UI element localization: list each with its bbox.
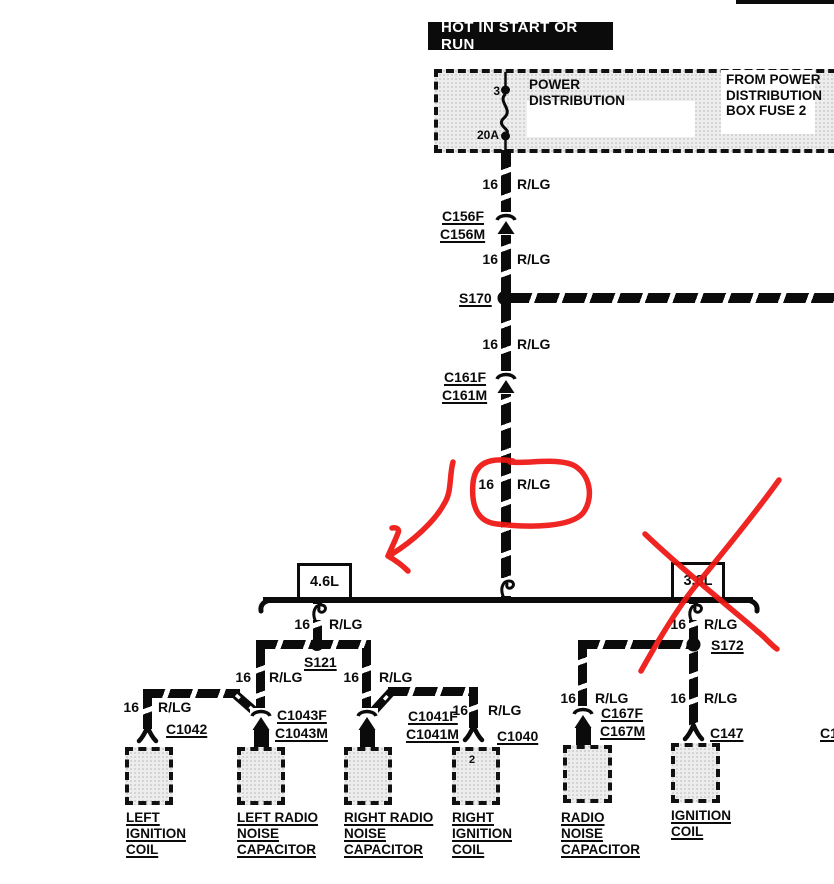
connector-c1042-label: C1042 — [166, 722, 207, 736]
splice-s121-label: S121 — [304, 655, 337, 669]
connector-c161f-label: C161F — [444, 370, 486, 384]
engine-tag-46l: 4.6L — [297, 563, 352, 600]
connector-c161m-label: C161M — [442, 388, 487, 402]
red-circle-annotation — [473, 460, 590, 526]
connector-c1040-label: C1040 — [497, 729, 538, 743]
wiring-diagram-page: HOT IN START OR RUN POWER DISTRIBUTION F… — [0, 0, 834, 884]
color-label: R/LG — [379, 670, 412, 684]
box-left-ignition-coil — [125, 747, 173, 805]
wire-c1040-vertical — [469, 687, 478, 728]
label-left-ignition-coil: LEFT IGNITION COIL — [126, 810, 186, 858]
color-label: R/LG — [704, 617, 737, 631]
stub-c1041 — [360, 727, 375, 748]
wire-s121-bar — [256, 640, 371, 649]
gauge-label: 16 — [109, 700, 139, 714]
wire-s121-c1043 — [256, 648, 265, 710]
label-right-radio-noise-capacitor: RIGHT RADIO NOISE CAPACITOR — [344, 810, 433, 858]
label-ignition-coil: IGNITION COIL — [671, 808, 731, 840]
wire-s170-branch — [510, 293, 834, 303]
box-right-radio-noise-capacitor — [344, 747, 392, 805]
gauge-label: 16 — [656, 617, 686, 631]
gauge-label: 16 — [468, 252, 498, 266]
connector-c1041m-label: C1041M — [406, 727, 459, 741]
gauge-label: 16 — [656, 691, 686, 705]
wire-38l-drop-c147 — [689, 603, 698, 726]
color-label: R/LG — [517, 337, 550, 351]
box-left-radio-noise-capacitor — [237, 747, 285, 805]
gauge-label: 16 — [546, 691, 576, 705]
connector-c156f-label: C156F — [442, 209, 484, 223]
box-right-ignition-coil — [452, 747, 500, 805]
wire-s121-c1041 — [362, 648, 371, 710]
wire-main-vertical — [501, 150, 511, 599]
color-label: R/LG — [488, 703, 521, 717]
engine-46l-label: 4.6L — [310, 574, 339, 590]
connector-c167m-label: C167M — [600, 724, 645, 738]
stub-c1043 — [254, 727, 269, 748]
red-arrow-annotation — [392, 462, 453, 554]
connector-c1043m-label: C1043M — [275, 726, 328, 740]
label-left-radio-noise-capacitor: LEFT RADIO NOISE CAPACITOR — [237, 810, 318, 858]
connector-c147-label: C147 — [710, 726, 743, 740]
splice-s170-label: S170 — [459, 291, 492, 305]
power-source-note: FROM POWER DISTRIBUTION BOX FUSE 2 — [726, 72, 822, 119]
stub-c167 — [576, 725, 591, 746]
box-radio-noise-capacitor — [563, 745, 612, 803]
color-label: R/LG — [517, 177, 550, 191]
color-label: R/LG — [158, 700, 191, 714]
wire-c1042-vertical — [143, 689, 152, 729]
red-arrowhead — [388, 528, 408, 571]
splice-s172-label: S172 — [711, 638, 744, 652]
color-label: R/LG — [517, 252, 550, 266]
color-label: R/LG — [517, 477, 550, 491]
connector-c167f-label: C167F — [601, 706, 643, 720]
label-radio-noise-capacitor: RADIO NOISE CAPACITOR — [561, 810, 640, 858]
connector-c156m-label: C156M — [440, 227, 485, 241]
fuse-pin-label: 3 — [470, 84, 500, 98]
pin-2-label: 2 — [469, 753, 475, 767]
edge-cropped-connector-label: C1 — [820, 726, 834, 740]
cropped-top-edge — [736, 0, 834, 4]
color-label: R/LG — [704, 691, 737, 705]
label-right-ignition-coil: RIGHT IGNITION COIL — [452, 810, 512, 858]
wire-s172-c167-horizontal — [578, 640, 694, 649]
engine-tag-38l: 3.8L — [671, 562, 725, 600]
wire-c1040-horizontal — [388, 687, 478, 696]
color-label: R/LG — [329, 617, 362, 631]
engine-38l-label: 3.8L — [683, 573, 712, 589]
connector-c1043f-label: C1043F — [277, 708, 327, 722]
banner-text: HOT IN START OR RUN — [441, 19, 613, 53]
gauge-label: 16 — [221, 670, 251, 684]
wire-c1042-horizontal — [143, 689, 240, 698]
fuse-rating-label: 20A — [469, 128, 499, 142]
color-label: R/LG — [269, 670, 302, 684]
connector-c1041f-label: C1041F — [408, 709, 458, 723]
power-distribution-title: POWER DISTRIBUTION — [529, 77, 625, 108]
color-label: R/LG — [595, 691, 628, 705]
gauge-label: 16 — [468, 177, 498, 191]
hot-in-start-or-run-banner: HOT IN START OR RUN — [428, 22, 613, 50]
gauge-label: 16 — [468, 337, 498, 351]
wire-46l-drop — [313, 603, 322, 643]
box-ignition-coil — [671, 743, 720, 803]
wire-s172-c167-vertical — [578, 640, 587, 708]
gauge-label: 16 — [464, 477, 494, 491]
gauge-label: 16 — [329, 670, 359, 684]
gauge-label: 16 — [280, 617, 310, 631]
